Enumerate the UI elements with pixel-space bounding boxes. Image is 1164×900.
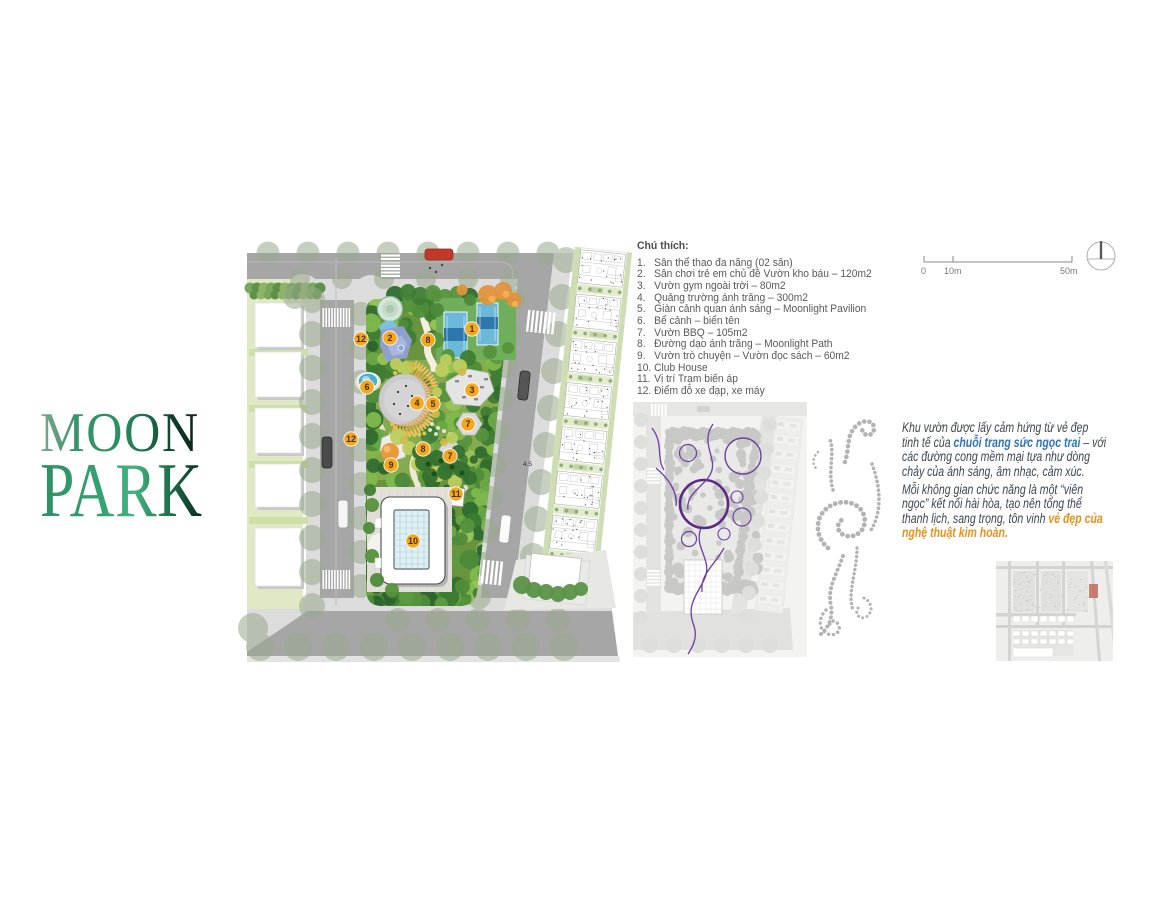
svg-text:6: 6 [364,382,369,392]
svg-text:8: 8 [425,335,430,345]
svg-text:12: 12 [356,334,366,344]
svg-text:4: 4 [414,398,419,408]
svg-text:7: 7 [465,419,470,429]
svg-text:0: 0 [921,266,926,276]
svg-text:12: 12 [346,434,356,444]
svg-text:9: 9 [388,460,393,470]
svg-text:50m: 50m [1060,266,1078,276]
svg-text:10: 10 [408,536,418,546]
svg-text:4.5: 4.5 [523,461,532,468]
svg-text:8: 8 [420,444,425,454]
svg-text:3: 3 [469,385,474,395]
svg-text:2: 2 [387,333,392,343]
svg-text:11: 11 [451,489,461,499]
svg-text:5: 5 [430,399,435,409]
svg-text:10m: 10m [944,266,962,276]
svg-text:1: 1 [469,324,474,334]
svg-text:7: 7 [447,451,452,461]
